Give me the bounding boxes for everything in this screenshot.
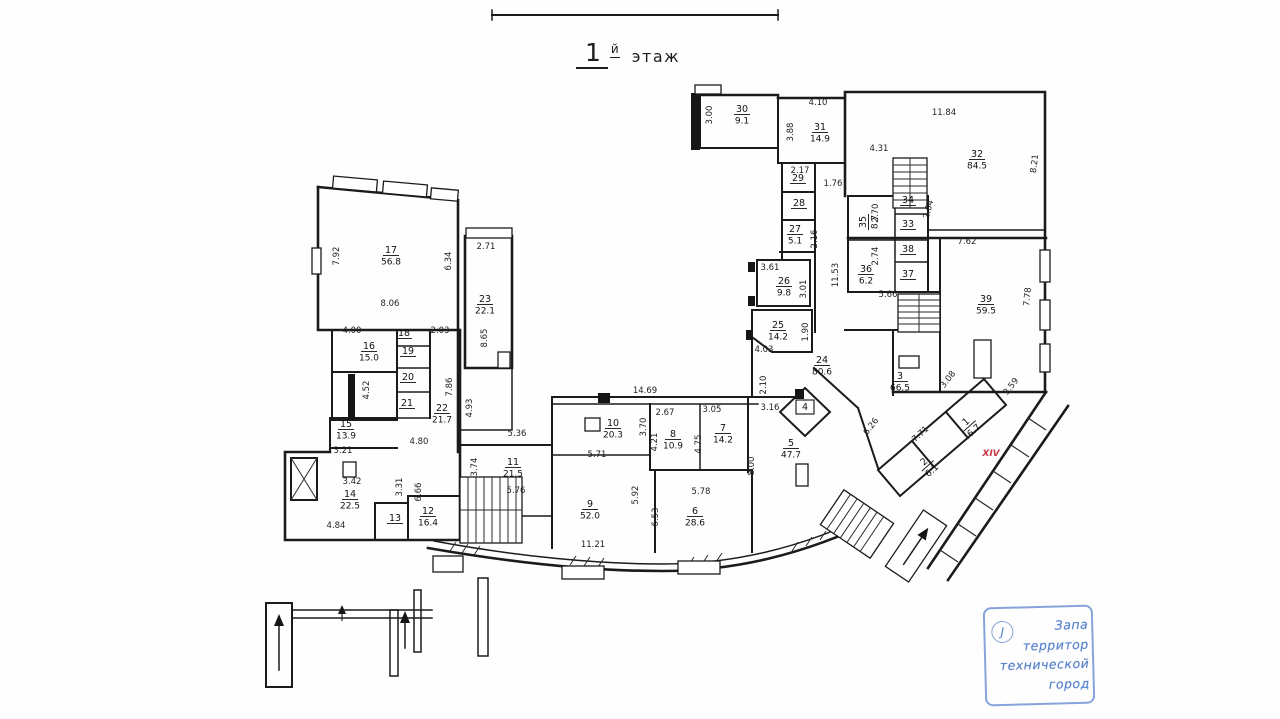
- room-9-label: 952.0: [580, 499, 600, 522]
- plan-text: 66.5: [890, 384, 910, 394]
- dimension-label: 14.69: [633, 386, 657, 396]
- plan-text: 4: [802, 402, 808, 413]
- dimension-label: 4.52: [362, 381, 372, 400]
- room-31-label: 3114.9: [810, 122, 830, 145]
- column: [498, 352, 510, 368]
- plan-text: 47.7: [781, 451, 801, 461]
- wall-segment: [390, 610, 398, 676]
- plan-text: 22.5: [340, 502, 360, 512]
- wall-segment: [695, 85, 721, 94]
- wall-segment: [746, 330, 753, 340]
- stamp-line: Запа: [999, 615, 1089, 637]
- plan-text: 20: [402, 372, 414, 383]
- plan-text: 30: [736, 104, 748, 115]
- stamp-line: город: [1000, 673, 1090, 695]
- wall-segment: [795, 389, 804, 399]
- plan-text: 26: [778, 276, 790, 287]
- plan-text: 18: [398, 328, 410, 339]
- room-13-label: 13: [387, 513, 403, 524]
- room-33-label: 33: [900, 219, 916, 230]
- plan-text: 11: [507, 457, 519, 468]
- plan-text: 25: [772, 320, 784, 331]
- staircase-east: [898, 294, 940, 332]
- plan-text: 33: [902, 219, 914, 230]
- dimension-label: 4.31: [870, 144, 889, 154]
- dimension-label: 4.75: [694, 435, 704, 454]
- plan-text: 80.6: [812, 368, 832, 378]
- dimension-label: 11.53: [831, 263, 841, 287]
- dimension-label: 7.92: [332, 247, 342, 266]
- wall-segment: [748, 296, 755, 306]
- room-34-label: 34: [900, 195, 916, 206]
- wall-segment: [348, 374, 355, 420]
- wall-segment: [820, 490, 893, 558]
- room-36-label: 366.2: [858, 264, 874, 287]
- plan-text: 6.2: [859, 277, 873, 287]
- room-19-label: 19: [400, 346, 416, 357]
- room-1-label: 16.7: [957, 413, 984, 440]
- entrance-ramp: [885, 510, 946, 582]
- room-17-label: 1756.8: [381, 245, 401, 268]
- room-27-label: 275.1: [787, 224, 803, 247]
- room-23-label: 2322.1: [475, 294, 495, 317]
- room-22-label: 2221.7: [432, 403, 452, 426]
- plan-text: 59.5: [976, 307, 996, 317]
- room-11-label: 1121.5: [503, 457, 523, 480]
- wall-segment: [312, 248, 321, 274]
- plan-text: 14: [344, 489, 356, 500]
- plan-text: 9.8: [777, 289, 792, 299]
- room-15-label: 1513.9: [336, 419, 356, 442]
- dimension-label: 5.66: [879, 290, 898, 300]
- plan-text: 22: [436, 403, 448, 414]
- plan-text: 13: [389, 513, 401, 524]
- room-14-label: 1422.5: [340, 489, 360, 512]
- dimension-label: 8.06: [381, 299, 400, 309]
- wall-segment: [292, 610, 432, 618]
- plan-text: 15: [340, 419, 352, 430]
- column: [974, 340, 991, 378]
- wall-segment: [1040, 300, 1050, 330]
- dimension-label: 3.59: [1002, 376, 1022, 397]
- plan-text: 31: [814, 122, 826, 133]
- room-18-label: 18: [396, 328, 412, 339]
- plan-text: 2: [918, 456, 930, 468]
- dimension-label: 3.00: [705, 106, 715, 125]
- dimension-label: 3.88: [786, 123, 796, 142]
- plan-text: 9.1: [735, 117, 749, 127]
- plan-text: 24: [816, 355, 828, 366]
- column: [585, 418, 600, 431]
- dimension-label: 2.17: [791, 166, 810, 176]
- wall-piers: [348, 93, 804, 420]
- dimension-label: 5.76: [507, 486, 526, 496]
- plan-text: 84.5: [967, 162, 987, 172]
- room-21-label: 21: [399, 398, 415, 409]
- dimension-label: 3.16: [761, 403, 780, 413]
- dimension-label: 3.05: [703, 405, 722, 415]
- plan-text: 5: [788, 438, 794, 449]
- plan-text: 5.1: [788, 237, 802, 247]
- dimension-label: 11.21: [581, 540, 605, 550]
- wall-segment: [466, 228, 512, 238]
- room-16-label: 1615.0: [359, 341, 379, 364]
- porch: [678, 561, 720, 574]
- scale-bar: [492, 10, 778, 20]
- plan-text: 32: [971, 149, 983, 160]
- dimension-label: 2.70: [871, 204, 881, 223]
- room-5-label: 547.7: [781, 438, 801, 461]
- dimension-label: 5.78: [692, 487, 711, 497]
- plan-text: 14.2: [713, 436, 733, 446]
- dimension-label: 3.08: [939, 369, 959, 390]
- plan-text: 56.8: [381, 258, 401, 268]
- plan-text: 16.4: [418, 519, 438, 529]
- room-20-label: 20: [400, 372, 416, 383]
- wall-segment: [1040, 344, 1050, 372]
- plan-text: 34: [902, 195, 914, 206]
- dimension-label: 8.21: [1029, 154, 1041, 174]
- stamp-line: технической: [1000, 654, 1090, 676]
- room-26-label: 269.8: [776, 276, 792, 299]
- plan-text: 9: [587, 499, 593, 510]
- dimension-label: 2.16: [810, 230, 820, 249]
- plan-text: 3: [897, 371, 903, 382]
- dimension-label: 4.80: [410, 437, 429, 447]
- dimension-label: 6.34: [444, 252, 454, 271]
- room-6-label: 628.6: [685, 506, 705, 529]
- dimension-label: 5.92: [631, 486, 641, 505]
- staircase-southeast: [820, 490, 893, 558]
- plan-text: 10: [607, 418, 619, 429]
- dimension-label: 3.21: [334, 446, 353, 456]
- plan-text: 6: [692, 506, 698, 517]
- plan-text: 15.0: [359, 354, 379, 364]
- plan-text: 8: [670, 429, 676, 440]
- curtain-wall-mullions: [940, 418, 1046, 562]
- wall-segment: [748, 262, 755, 272]
- room-25-label: 2514.2: [768, 320, 788, 343]
- room-28-label: 28: [791, 198, 807, 209]
- plan-text: 37: [902, 269, 914, 280]
- plan-text: 52.0: [580, 512, 600, 522]
- elevator-shaft-icon: [291, 458, 317, 500]
- dimension-label: 6.26: [862, 416, 882, 437]
- wall-segment: [478, 578, 488, 656]
- column: [899, 356, 919, 368]
- wall-segment: [1040, 250, 1050, 282]
- dimension-label: 3.31: [395, 478, 405, 497]
- plan-text: 14.9: [810, 135, 830, 145]
- registry-stamp: J Запатерритортехническойгород: [983, 605, 1096, 707]
- room-38-label: 38: [900, 244, 916, 255]
- dimension-label: 5.71: [588, 450, 607, 460]
- porch: [562, 566, 604, 579]
- plan-text: 28: [793, 198, 805, 209]
- dimension-label: 1.90: [801, 323, 811, 342]
- room-24-label: 2480.6: [812, 355, 832, 378]
- dimension-label: 7.62: [958, 237, 977, 247]
- wall-segment: [291, 458, 317, 500]
- dimension-label: 7.78: [1022, 287, 1034, 307]
- room-7-label: 714.2: [713, 423, 733, 446]
- entrance-southwest: [266, 578, 488, 687]
- dimension-label: 4.21: [650, 433, 660, 452]
- plan-text: 35: [858, 216, 869, 228]
- dimension-label: 1.76: [824, 179, 843, 189]
- plan-text: 39: [980, 294, 992, 305]
- room-4-label: 4: [796, 400, 814, 414]
- plan-text: 21.7: [432, 416, 452, 426]
- plan-text: 12: [422, 506, 434, 517]
- stamp-line: территор: [999, 634, 1089, 656]
- dimension-label: 3.01: [799, 280, 809, 299]
- zone-xiv-label: XIV: [981, 449, 1000, 459]
- plan-text: 17: [385, 245, 397, 256]
- room-10-label: 1020.3: [603, 418, 623, 441]
- dimension-label: 3.42: [343, 477, 362, 487]
- dimension-label: 11.84: [932, 108, 956, 118]
- stamp-text: Запатерритортехническойгород: [999, 615, 1090, 695]
- dimension-label: 2.10: [759, 376, 769, 395]
- dimension-label: 2.74: [871, 247, 881, 266]
- wall-segment: [928, 392, 1068, 580]
- dimension-label: 6.66: [414, 483, 424, 502]
- up-arrow-icon: [274, 614, 284, 626]
- plan-text: 38: [902, 244, 914, 255]
- dimension-label: 3.70: [639, 418, 649, 437]
- wall-segment: [691, 93, 700, 150]
- plan-text: 20.3: [603, 431, 623, 441]
- wall-segment: [598, 393, 610, 403]
- dimension-label: 2.03: [431, 326, 450, 336]
- plan-text: 28.6: [685, 519, 705, 529]
- dimension-label: 4.00: [343, 326, 362, 336]
- plan-text: 10.9: [663, 442, 683, 452]
- column: [343, 462, 356, 477]
- dimension-label: 8.65: [480, 329, 490, 348]
- special-labels-layer: XIV: [981, 449, 1000, 459]
- dimension-label: 8.00: [747, 457, 757, 476]
- room-32-label: 3284.5: [967, 149, 987, 172]
- dimension-label: 4.93: [465, 399, 475, 418]
- dimension-label: 6.53: [651, 508, 661, 527]
- up-arrow-icon: [400, 611, 410, 623]
- dimension-label: 5.36: [508, 429, 527, 439]
- room-12-label: 1216.4: [418, 506, 438, 529]
- plan-text: 19: [402, 346, 414, 357]
- room-30-label: 309.1: [734, 104, 750, 127]
- porch: [433, 556, 463, 572]
- floor-plan-page: 1 й этаж: [0, 0, 1280, 719]
- plan-text: 21: [401, 398, 413, 409]
- plan-text: 16: [363, 341, 375, 352]
- dimension-label: 3.74: [470, 458, 480, 477]
- plan-text: 13.9: [336, 432, 356, 442]
- column: [796, 464, 808, 486]
- dimension-label: 7.86: [445, 378, 455, 397]
- wall-segment: [431, 188, 459, 201]
- plan-text: 27: [789, 224, 801, 235]
- plan-text: 7: [720, 423, 726, 434]
- plan-text: 22.1: [475, 307, 495, 317]
- plan-text: 21.5: [503, 470, 523, 480]
- plan-text: 1: [960, 416, 972, 428]
- wall-segment: [414, 590, 421, 652]
- room-8-label: 810.9: [663, 429, 683, 452]
- dimension-label: 2.67: [656, 408, 675, 418]
- room-37-label: 37: [900, 269, 916, 280]
- dimension-label: 4.10: [809, 98, 828, 108]
- plan-text: 14.2: [768, 333, 788, 343]
- dimension-label: 4.84: [327, 521, 346, 531]
- room-39-label: 3959.5: [976, 294, 996, 317]
- dimension-label: 4.03: [755, 345, 774, 355]
- room-2-label: 26.1: [915, 453, 942, 480]
- dimension-label: 2.71: [477, 242, 496, 252]
- dimension-label: 3.61: [761, 263, 780, 273]
- plan-text: 23: [479, 294, 491, 305]
